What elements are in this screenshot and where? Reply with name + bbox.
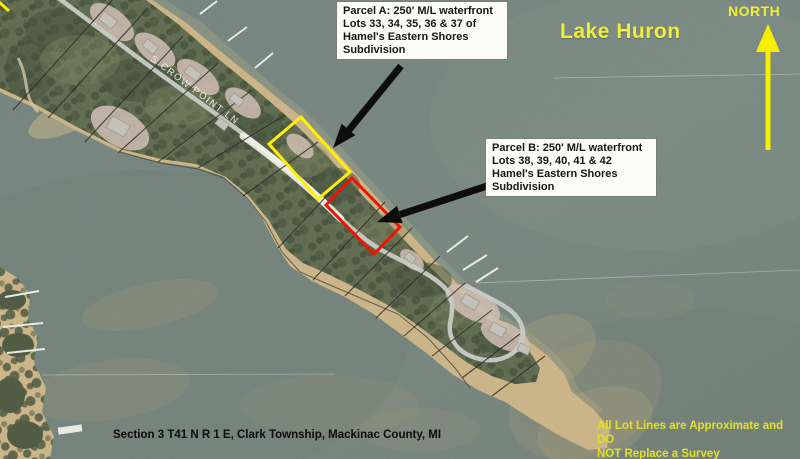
parcel-b-line-1: Parcel B: 250' M/L waterfront — [492, 142, 650, 155]
lake-huron-label: Lake Huron — [560, 20, 681, 44]
parcel-a-line-3: Hamel's Eastern Shores — [343, 31, 501, 44]
parcel-b-line-3: Hamel's Eastern Shores — [492, 168, 650, 181]
parcel-a-line-1: Parcel A: 250' M/L waterfront — [343, 5, 501, 18]
north-label: NORTH — [728, 3, 780, 19]
disclaimer-line-1: All Lot Lines are Approximate and DO — [597, 419, 800, 447]
section-township-label: Section 3 T41 N R 1 E, Clark Township, M… — [113, 429, 441, 441]
aerial-basemap: S CROW POINT LN — [0, 0, 800, 459]
disclaimer-line-2: NOT Replace a Survey — [597, 447, 800, 459]
lot-lines-disclaimer: All Lot Lines are Approximate and DO NOT… — [597, 419, 800, 459]
parcel-b-line-2: Lots 38, 39, 40, 41 & 42 — [492, 155, 650, 168]
parcel-b-callout: Parcel B: 250' M/L waterfront Lots 38, 3… — [486, 139, 656, 196]
parcel-a-line-4: Subdivision — [343, 44, 501, 57]
parcel-map-screenshot: S CROW POINT LN Parcel A: 250' M/L water… — [0, 0, 800, 459]
parcel-a-callout: Parcel A: 250' M/L waterfront Lots 33, 3… — [337, 2, 507, 59]
parcel-a-line-2: Lots 33, 34, 35, 36 & 37 of — [343, 18, 501, 31]
parcel-b-line-4: Subdivision — [492, 181, 650, 194]
